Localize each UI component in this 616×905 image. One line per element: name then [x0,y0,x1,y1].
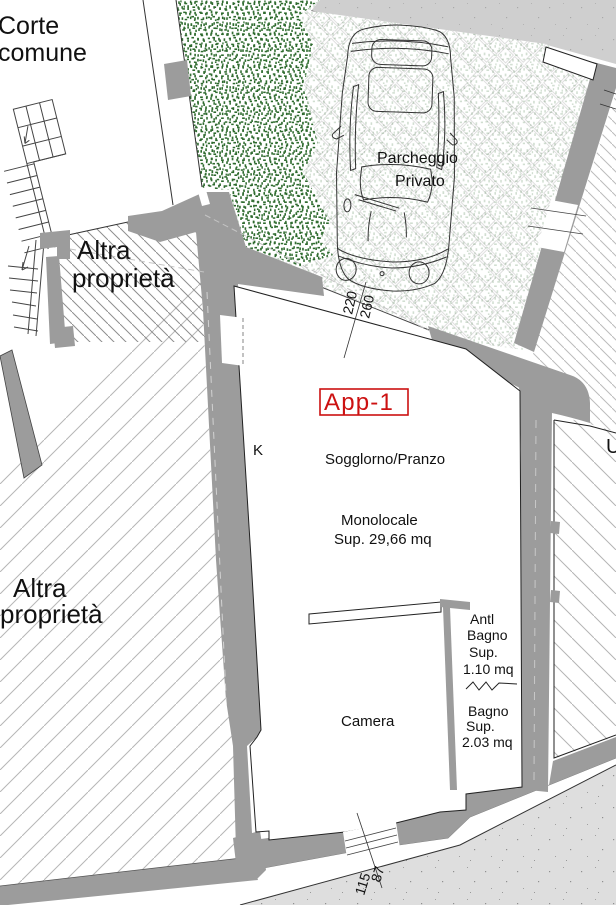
svg-text:Sogglorno/Pranzo: Sogglorno/Pranzo [325,451,445,468]
svg-text:Antl: Antl [470,611,494,627]
svg-text:1.10 mq: 1.10 mq [463,661,514,677]
svg-text:App-1: App-1 [324,389,394,416]
svg-text:Sup.: Sup. [469,644,498,660]
svg-text:Parcheggio: Parcheggio [377,150,458,167]
svg-text:proprietà: proprietà [0,599,103,629]
svg-text:2.03 mq: 2.03 mq [462,734,513,750]
svg-text:Sup.: Sup. [466,718,495,734]
svg-text:K: K [253,442,263,459]
svg-text:Altra: Altra [77,235,131,265]
svg-text:Sup. 29,66 mq: Sup. 29,66 mq [334,531,432,548]
svg-text:comune: comune [0,39,87,67]
svg-text:Camera: Camera [341,713,395,730]
svg-text:Monolocale: Monolocale [341,512,418,529]
svg-text:Bagno: Bagno [468,703,509,719]
svg-text:proprietà: proprietà [72,263,175,293]
svg-text:Bagno: Bagno [467,627,508,643]
svg-text:U: U [606,436,616,458]
svg-text:Corte: Corte [0,12,59,40]
svg-text:Privato: Privato [395,173,445,190]
